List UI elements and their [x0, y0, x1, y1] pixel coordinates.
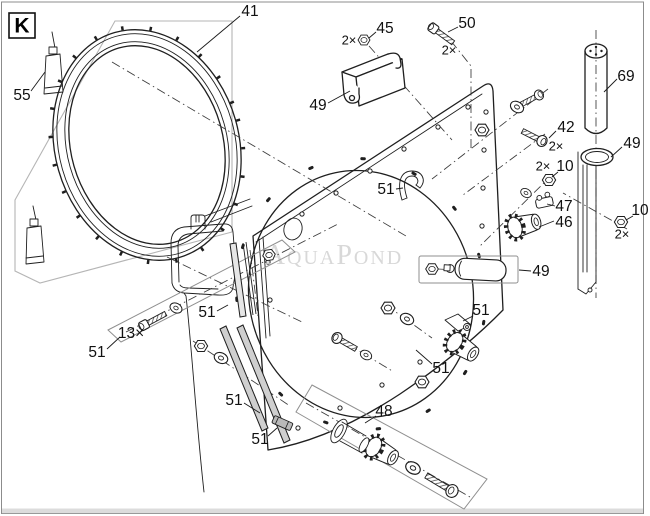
k-tag-letter: K [14, 15, 29, 38]
part-label: 55 [13, 87, 30, 104]
nut-box-49 [426, 264, 439, 274]
quantity-label: 2× [615, 226, 630, 241]
part-label: 48 [375, 403, 392, 420]
quantity-label: 2× [536, 158, 551, 173]
part-label: 69 [617, 68, 634, 85]
exploded-parts-diagram: K [0, 0, 650, 516]
part-label: 51 [251, 431, 268, 448]
part-label: 49 [532, 263, 549, 280]
watermark-text: AquaPond [265, 240, 403, 271]
nut-center [381, 302, 395, 314]
nut-left [194, 340, 207, 351]
part-label: 51 [472, 302, 489, 319]
part-label: 46 [555, 214, 572, 231]
part-label: 51 [432, 360, 449, 377]
nut-45 [358, 35, 370, 45]
k-tag: K [9, 13, 35, 38]
quantity-label: 2× [342, 32, 357, 47]
quantity-label: 2× [549, 138, 564, 153]
part-label: 51 [377, 181, 394, 198]
part-label: 41 [241, 3, 258, 20]
part-label: 10 [556, 158, 574, 175]
part-label: 10 [631, 202, 649, 219]
part-label: 51 [88, 344, 105, 361]
part-label: 51 [225, 392, 242, 409]
nut-upper-right [475, 124, 489, 136]
part-label: 45 [376, 20, 393, 37]
part-label: 13× [118, 325, 144, 342]
part-label: 42 [557, 119, 574, 136]
part-label: 49 [309, 97, 326, 114]
part-label: 50 [458, 15, 476, 32]
diagram-canvas: K [0, 0, 650, 516]
part-label: 51 [198, 304, 215, 321]
quantity-label: 2× [442, 42, 457, 57]
part-label: 47 [555, 198, 572, 215]
footer-bar [2, 509, 643, 514]
nut-48 [415, 376, 429, 388]
part-label: 49 [623, 135, 640, 152]
